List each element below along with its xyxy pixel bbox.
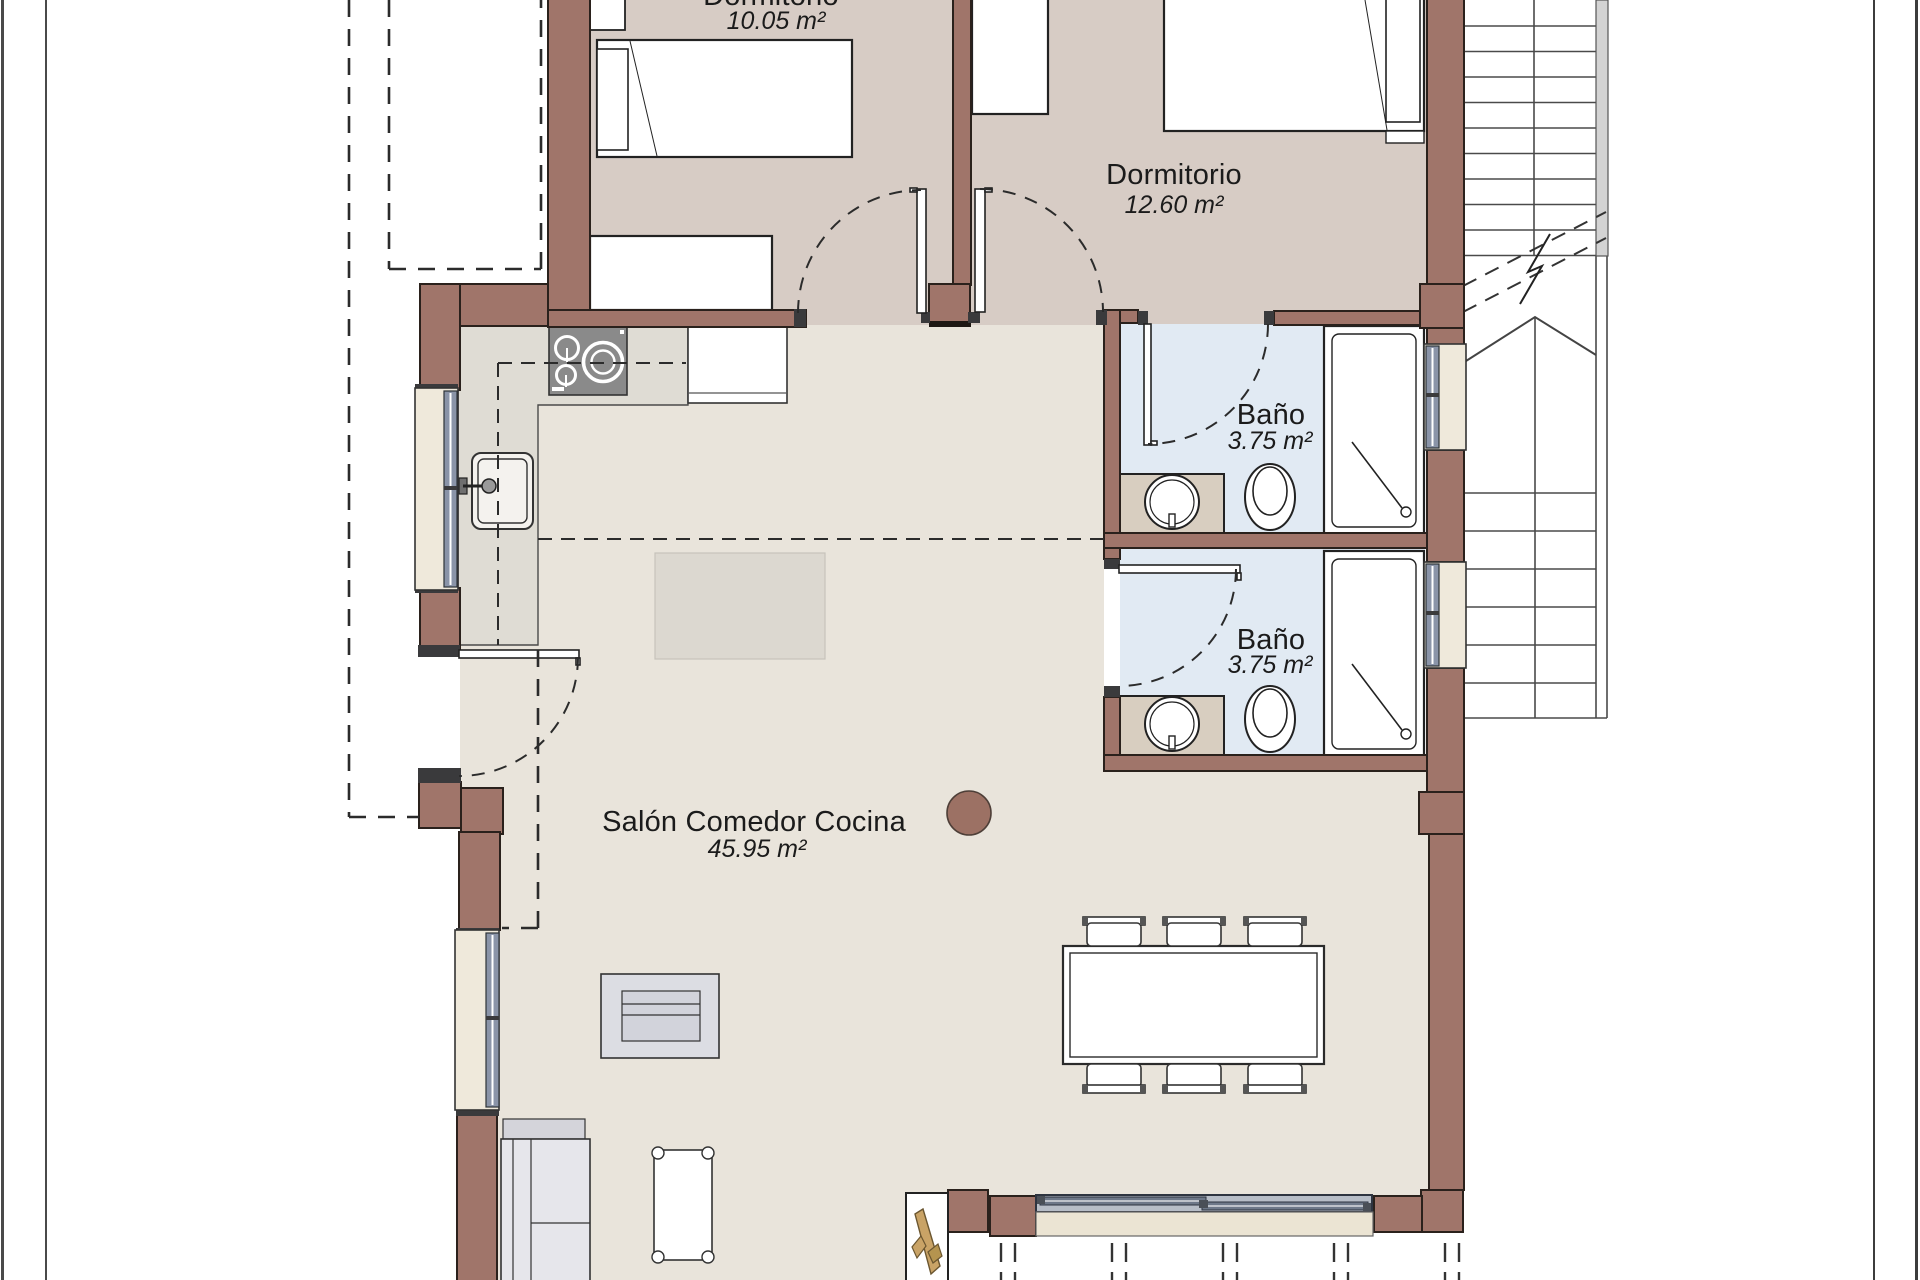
svg-text:Salón Comedor Cocina: Salón Comedor Cocina: [602, 806, 906, 838]
svg-text:3.75 m²: 3.75 m²: [1228, 651, 1314, 679]
svg-text:10.05 m²: 10.05 m²: [727, 7, 827, 35]
svg-text:45.95 m²: 45.95 m²: [708, 835, 808, 863]
svg-text:Dormitorio: Dormitorio: [1106, 159, 1242, 191]
svg-text:3.75 m²: 3.75 m²: [1228, 427, 1314, 455]
svg-text:12.60 m²: 12.60 m²: [1125, 191, 1225, 219]
